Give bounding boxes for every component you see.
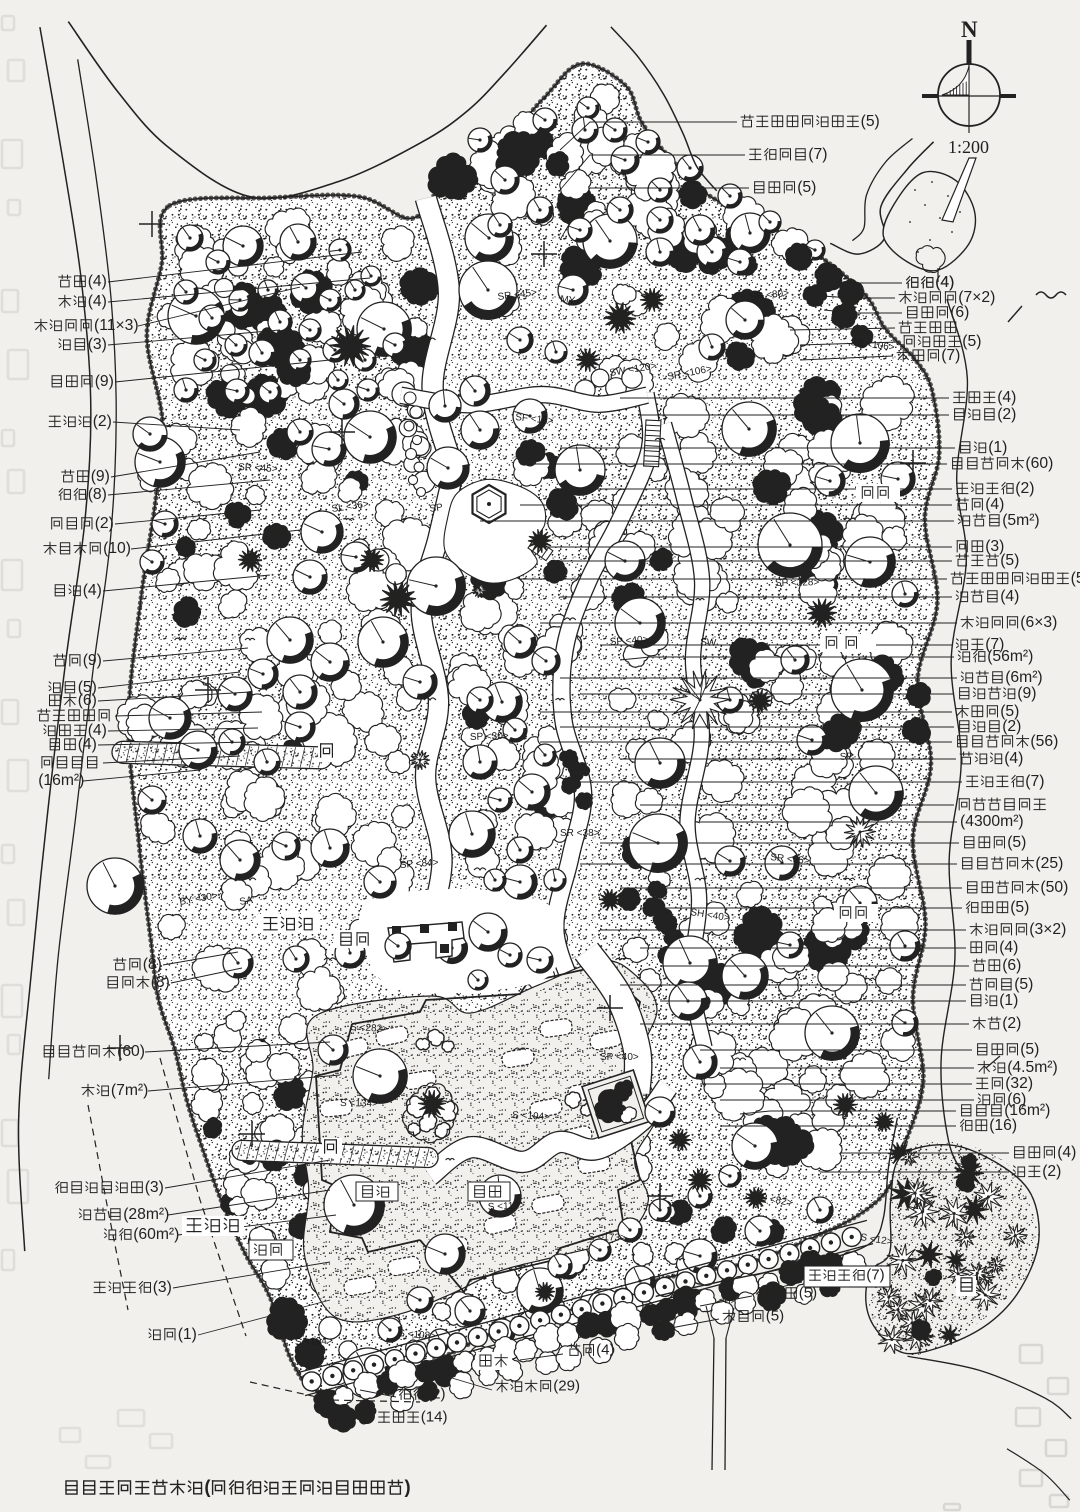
svg-text:(9): (9) [91, 468, 110, 485]
svg-text:(4): (4) [999, 939, 1018, 956]
svg-text:(8): (8) [151, 974, 170, 991]
svg-text:(1): (1) [999, 992, 1018, 1009]
svg-text:S <194>: S <194> [512, 1110, 550, 1123]
svg-text:(7m²): (7m²) [111, 1082, 148, 1099]
svg-text:(4.5m²): (4.5m²) [1007, 1059, 1058, 1076]
svg-text:S <112>: S <112> [488, 1200, 526, 1213]
svg-text:(2): (2) [427, 1386, 445, 1403]
svg-text:(2): (2) [95, 515, 114, 532]
svg-text:(8): (8) [143, 956, 162, 973]
svg-text:(9): (9) [1017, 685, 1036, 702]
svg-text:(6m²): (6m²) [1005, 669, 1042, 686]
svg-text:(50): (50) [1040, 879, 1068, 896]
svg-text:SP <30>: SP <30> [470, 731, 509, 743]
svg-text:(32): (32) [1005, 1075, 1033, 1092]
svg-text:(4): (4) [1000, 588, 1019, 605]
svg-text:(5): (5) [799, 1285, 817, 1302]
svg-text:(5): (5) [962, 333, 981, 350]
svg-text:(5): (5) [1020, 1041, 1039, 1058]
svg-text:(5): (5) [861, 113, 880, 130]
svg-text:SP: SP [840, 751, 854, 763]
svg-text:(4): (4) [935, 274, 954, 291]
svg-text:(5): (5) [1000, 552, 1019, 569]
svg-text:(60m²): (60m²) [133, 1226, 179, 1243]
svg-text:(4): (4) [997, 389, 1016, 406]
svg-text:(5): (5) [1007, 834, 1026, 851]
svg-text:N: N [961, 17, 978, 42]
svg-text:(16m²): (16m²) [38, 772, 84, 789]
svg-text:(2): (2) [1002, 1015, 1021, 1032]
svg-text:S <282>: S <282> [350, 1022, 388, 1035]
svg-text:1:200: 1:200 [948, 137, 989, 157]
svg-text:(6): (6) [950, 304, 969, 321]
svg-text:(2): (2) [1002, 718, 1021, 735]
svg-text:(4300m²): (4300m²) [960, 813, 1024, 830]
svg-text:(6): (6) [1002, 957, 1021, 974]
svg-text:(5): (5) [766, 1308, 784, 1325]
svg-text:SP <40>: SP <40> [600, 1052, 639, 1063]
svg-text:(5): (5) [797, 179, 816, 196]
svg-text:(4): (4) [83, 582, 102, 599]
svg-text:(6×3): (6×3) [1020, 614, 1057, 631]
svg-text:(16): (16) [989, 1117, 1017, 1134]
svg-text:(7): (7) [1025, 773, 1044, 790]
svg-text:(4): (4) [985, 496, 1004, 513]
svg-text:SA: SA [239, 895, 254, 908]
svg-text:(8): (8) [88, 486, 107, 503]
svg-text:(2): (2) [93, 413, 112, 430]
svg-text:(56m²): (56m²) [987, 648, 1033, 665]
svg-text:(9): (9) [95, 373, 114, 390]
svg-text:(4): (4) [88, 293, 107, 310]
svg-text:(60): (60) [117, 1043, 145, 1060]
svg-text:(4): (4) [1004, 750, 1023, 767]
svg-text:(3): (3) [145, 1179, 164, 1196]
svg-text:S <194>: S <194> [295, 1336, 333, 1348]
svg-text:SR <45>: SR <45> [238, 462, 278, 475]
svg-text:(10): (10) [103, 540, 131, 557]
svg-text:(5m²): (5m²) [1002, 512, 1039, 529]
svg-text:(14): (14) [421, 1409, 448, 1426]
svg-text:(3): (3) [153, 1279, 172, 1296]
svg-text:(3): (3) [88, 336, 107, 353]
svg-text:(1): (1) [988, 439, 1007, 456]
svg-text:MY: MY [560, 294, 576, 307]
svg-text:SP: SP [429, 502, 444, 515]
svg-text:(3×2): (3×2) [1029, 921, 1066, 938]
svg-text:SW: SW [700, 637, 717, 649]
svg-text:SR <38>: SR <38> [560, 828, 600, 839]
svg-text:(9): (9) [83, 652, 102, 669]
svg-text:(4): (4) [596, 1342, 614, 1359]
svg-text:(5): (5) [1071, 570, 1080, 587]
svg-text:(2): (2) [1042, 1163, 1061, 1180]
svg-text:(5): (5) [1010, 899, 1029, 916]
svg-text:(2): (2) [997, 406, 1016, 423]
svg-text:(1): (1) [178, 1326, 197, 1343]
svg-text:): ) [405, 1476, 411, 1497]
svg-text:(29): (29) [553, 1378, 580, 1395]
svg-text:(28m²): (28m²) [123, 1206, 169, 1223]
svg-text:(60): (60) [1025, 455, 1053, 472]
svg-text:(: ( [204, 1476, 211, 1497]
svg-text:(7): (7) [941, 347, 960, 364]
svg-text:(7): (7) [808, 146, 827, 163]
svg-text:(5): (5) [1014, 976, 1033, 993]
svg-text:(25): (25) [1035, 855, 1063, 872]
svg-text:(6): (6) [78, 692, 97, 709]
svg-text:(7): (7) [866, 1267, 884, 1284]
svg-text:(4): (4) [88, 273, 107, 290]
svg-text:S <134>: S <134> [340, 1098, 378, 1110]
svg-text:(4): (4) [78, 736, 97, 753]
svg-text:S <173>: S <173> [588, 1232, 626, 1244]
svg-text:(56): (56) [1030, 733, 1058, 750]
svg-text:(4): (4) [1057, 1144, 1076, 1161]
svg-text:(11×3): (11×3) [94, 317, 139, 334]
svg-text:(2): (2) [1015, 480, 1034, 497]
